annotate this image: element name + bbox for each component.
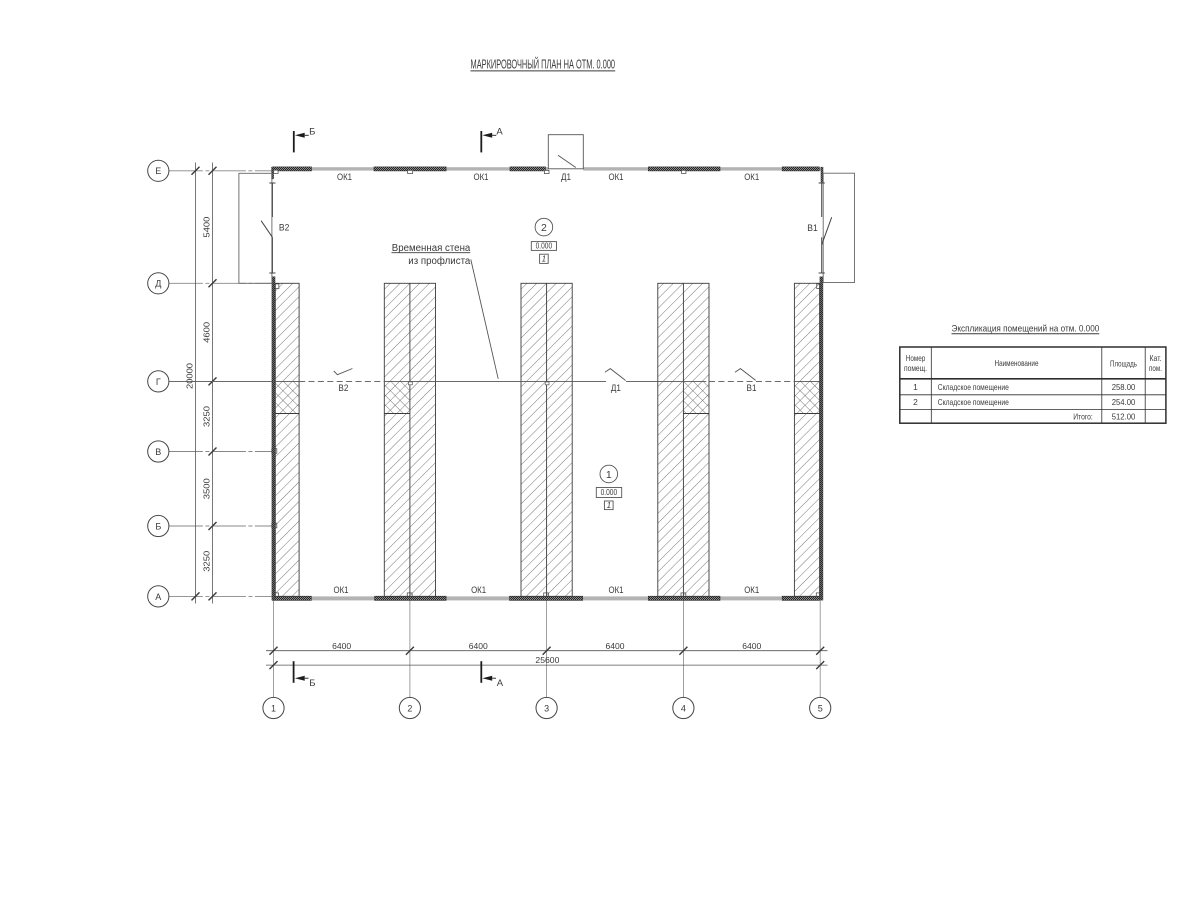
svg-text:ОК1: ОК1	[744, 172, 759, 182]
svg-text:4: 4	[681, 703, 686, 713]
svg-text:6400: 6400	[332, 642, 352, 651]
svg-text:Г: Г	[156, 377, 161, 387]
svg-text:из профлиста: из профлиста	[408, 255, 470, 267]
svg-text:В1: В1	[807, 223, 818, 233]
svg-text:5: 5	[818, 703, 823, 713]
svg-text:5400: 5400	[203, 216, 212, 238]
svg-text:Кат.: Кат.	[1150, 354, 1162, 363]
svg-text:2: 2	[541, 222, 547, 234]
svg-text:Б: Б	[309, 127, 315, 138]
svg-text:Б: Б	[309, 678, 315, 689]
svg-text:3250: 3250	[203, 405, 212, 427]
svg-text:Складское помещение: Складское помещение	[938, 382, 1009, 392]
svg-text:Номер: Номер	[906, 354, 926, 363]
svg-text:Экспликация помещений на отм.: Экспликация помещений на отм. 0.000	[952, 324, 1100, 334]
svg-text:1: 1	[606, 469, 612, 481]
svg-text:6400: 6400	[469, 642, 489, 651]
svg-text:254.00: 254.00	[1112, 397, 1136, 407]
svg-text:1: 1	[913, 382, 918, 392]
svg-text:3: 3	[544, 703, 549, 713]
svg-text:Временная стена: Временная стена	[392, 243, 471, 254]
svg-text:1: 1	[271, 703, 276, 713]
svg-text:Б: Б	[155, 521, 161, 531]
svg-text:20000: 20000	[186, 362, 195, 389]
svg-text:ОК1: ОК1	[337, 172, 352, 182]
svg-text:А: А	[497, 678, 504, 689]
svg-text:МАРКИРОВОЧНЫЙ ПЛАН НА ОТМ. 0.0: МАРКИРОВОЧНЫЙ ПЛАН НА ОТМ. 0.000	[471, 57, 616, 72]
svg-text:ОК1: ОК1	[471, 585, 486, 595]
svg-text:25600: 25600	[535, 656, 560, 665]
svg-text:помещ.: помещ.	[904, 364, 927, 373]
svg-text:258.00: 258.00	[1112, 382, 1136, 392]
svg-text:Д: Д	[155, 279, 161, 289]
svg-text:В1: В1	[747, 383, 757, 393]
svg-text:3500: 3500	[203, 478, 212, 500]
svg-text:512.00: 512.00	[1112, 412, 1136, 422]
svg-text:Е: Е	[155, 166, 161, 176]
svg-text:А: А	[496, 127, 503, 138]
svg-text:В2: В2	[279, 223, 290, 233]
svg-text:2: 2	[913, 397, 918, 407]
svg-text:В2: В2	[338, 383, 348, 393]
svg-text:1: 1	[607, 501, 611, 510]
svg-text:Д1: Д1	[561, 172, 571, 182]
svg-text:ОК1: ОК1	[744, 585, 759, 595]
svg-text:3250: 3250	[203, 550, 212, 572]
svg-text:А: А	[155, 592, 161, 602]
svg-text:6400: 6400	[606, 642, 626, 651]
svg-text:6400: 6400	[742, 642, 762, 651]
svg-text:Площадь: Площадь	[1110, 360, 1137, 369]
svg-text:Складское помещение: Складское помещение	[938, 397, 1009, 407]
svg-text:0.000: 0.000	[601, 488, 618, 497]
svg-text:0.000: 0.000	[536, 241, 553, 250]
svg-text:ОК1: ОК1	[334, 585, 349, 595]
svg-text:ОК1: ОК1	[609, 172, 624, 182]
svg-text:4600: 4600	[203, 321, 212, 343]
svg-text:2: 2	[407, 703, 412, 713]
svg-text:Наименование: Наименование	[995, 359, 1039, 368]
svg-text:ОК1: ОК1	[474, 172, 489, 182]
svg-text:Итого:: Итого:	[1073, 412, 1093, 422]
svg-text:Д1: Д1	[611, 383, 621, 393]
svg-text:ОК1: ОК1	[609, 585, 624, 595]
svg-text:пом.: пом.	[1149, 364, 1162, 373]
svg-text:1: 1	[542, 255, 546, 264]
svg-text:В: В	[155, 447, 161, 457]
